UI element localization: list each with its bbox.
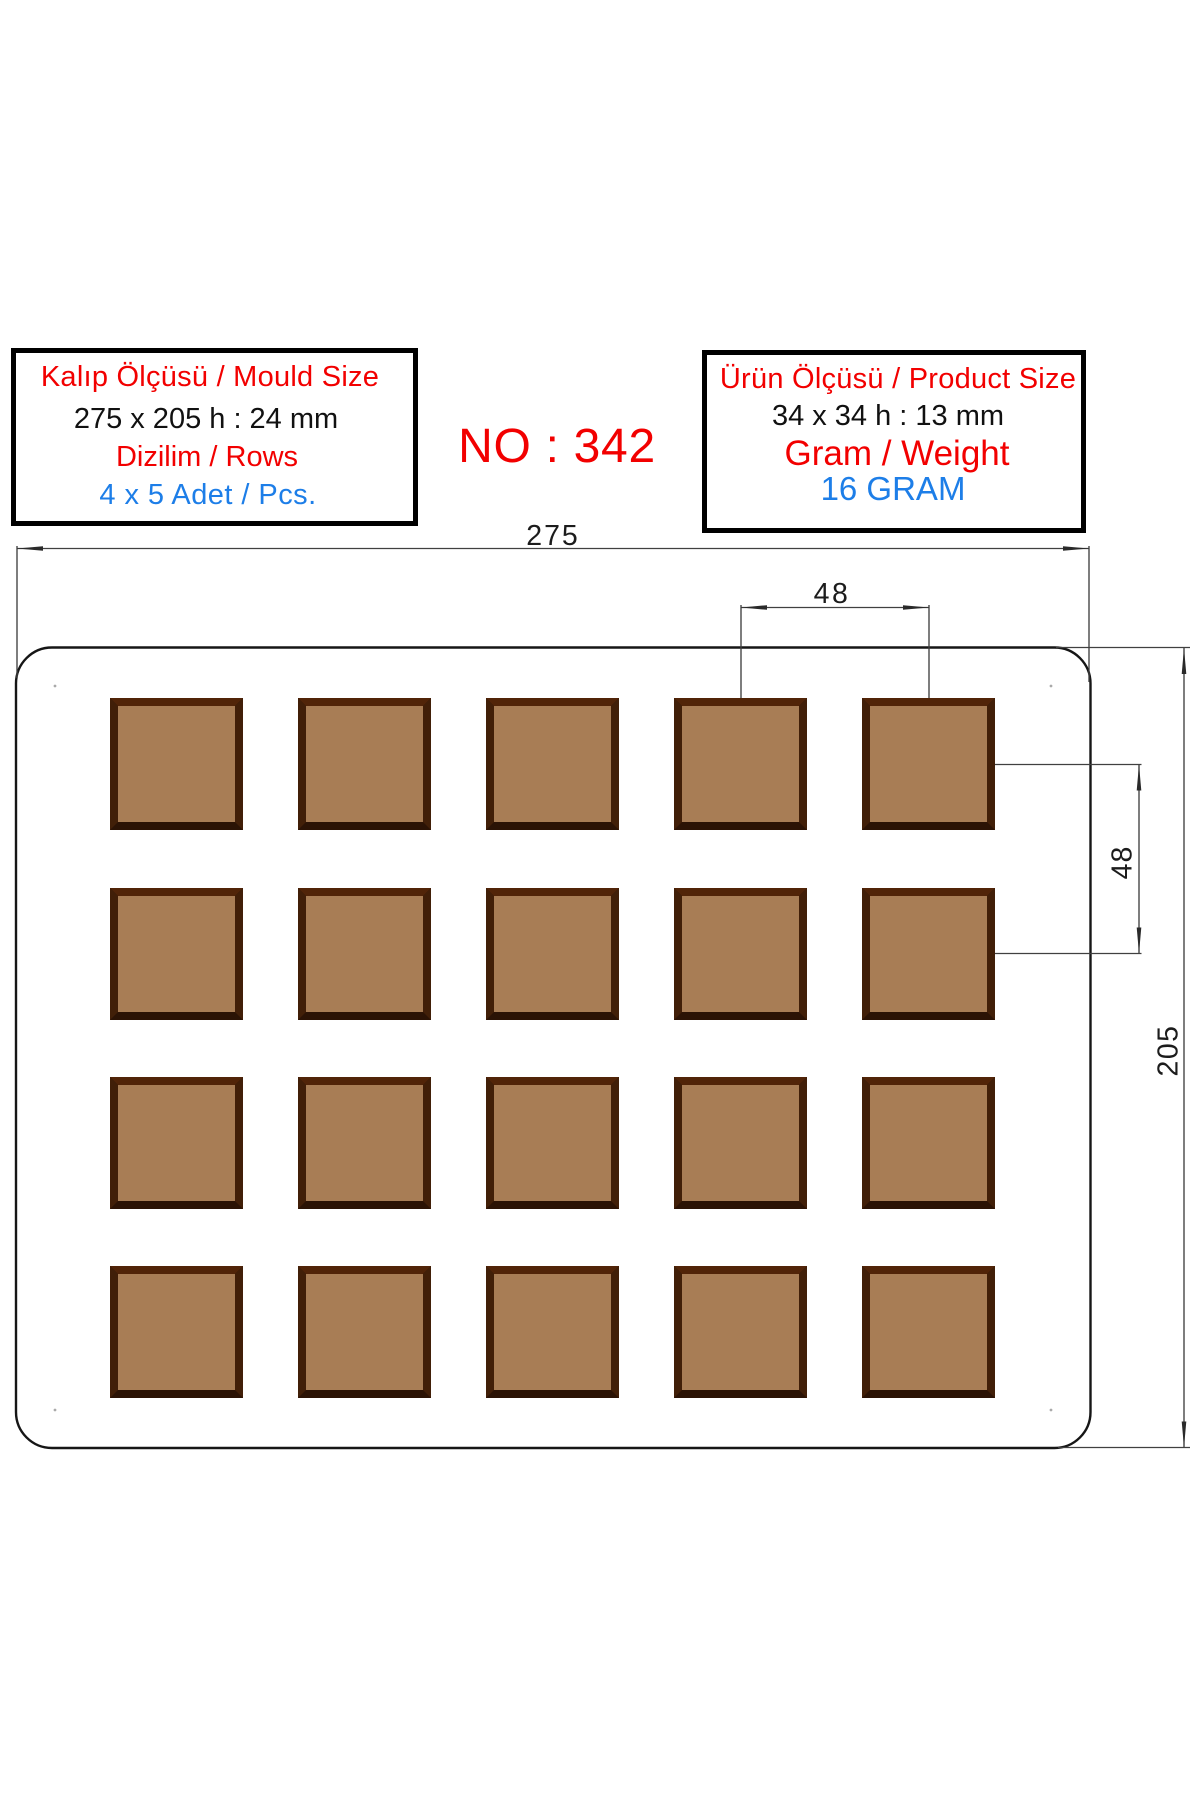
svg-text:34 x 34 h : 13 mm: 34 x 34 h : 13 mm	[772, 400, 1004, 432]
svg-text:NO : 342: NO : 342	[458, 420, 656, 473]
svg-text:48: 48	[1107, 846, 1139, 880]
svg-text:48: 48	[814, 578, 851, 610]
svg-text:Kalıp Ölçüsü / Mould Size: Kalıp Ölçüsü / Mould Size	[41, 361, 379, 393]
svg-text:275: 275	[526, 520, 580, 552]
svg-text:275 x 205 h : 24 mm: 275 x 205 h : 24 mm	[74, 403, 338, 435]
svg-text:Ürün Ölçüsü / Product Size: Ürün Ölçüsü / Product Size	[720, 363, 1076, 395]
svg-text:Gram / Weight: Gram / Weight	[785, 434, 1010, 473]
svg-text:205: 205	[1153, 1024, 1185, 1076]
svg-text:Dizilim / Rows: Dizilim / Rows	[116, 441, 298, 473]
svg-text:4 x 5 Adet / Pcs.: 4 x 5 Adet / Pcs.	[99, 479, 316, 511]
svg-text:16 GRAM: 16 GRAM	[821, 470, 966, 507]
